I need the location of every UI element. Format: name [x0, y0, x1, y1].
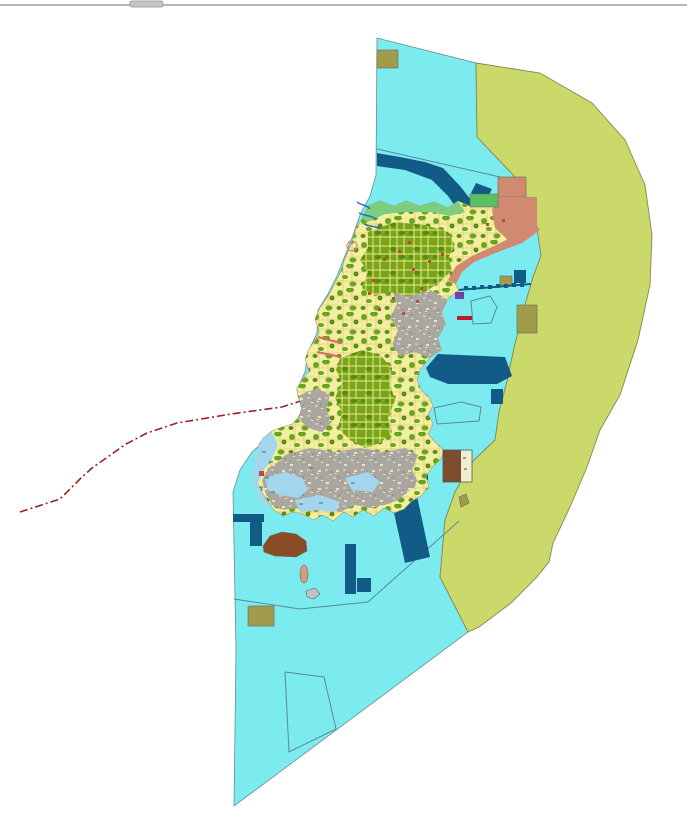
- village-dot: [441, 253, 444, 256]
- village-dot: [378, 308, 381, 311]
- map-canvas[interactable]: [0, 0, 687, 821]
- harbor-basin: [426, 354, 512, 384]
- village-dot: [416, 300, 419, 303]
- blue-square-south: [357, 578, 371, 592]
- blue-square-east-upper: [514, 270, 526, 283]
- islet-pink: [300, 565, 308, 583]
- forest-cluster-central: [335, 350, 395, 448]
- jetty-tick: [520, 283, 524, 287]
- red-coast-dot: [259, 471, 264, 476]
- village-dot: [412, 268, 415, 271]
- village-dot: [383, 258, 386, 261]
- south-pier-strip: [345, 544, 356, 594]
- southwest-pier-bar: [233, 514, 264, 522]
- map-svg: [0, 0, 687, 821]
- village-dot: [398, 250, 401, 253]
- jetty-tick: [496, 284, 500, 288]
- window-edge-knob: [130, 1, 163, 7]
- urban-area-east-central: [390, 285, 448, 358]
- jetty-tick: [464, 286, 468, 290]
- jetty-tick: [488, 285, 492, 289]
- khaki-zone-east-large: [517, 305, 537, 333]
- split-square-brown-half: [443, 450, 461, 482]
- jetty-tick: [472, 286, 476, 290]
- split-parcel-square: [443, 450, 472, 482]
- village-dot: [420, 287, 423, 290]
- village-dot: [392, 297, 395, 300]
- green-parcel-rect: [470, 194, 498, 207]
- khaki-zone-southwest: [248, 606, 274, 626]
- village-dot: [408, 241, 411, 244]
- jetty-tick: [504, 284, 508, 288]
- split-square-mark: [464, 468, 467, 470]
- village-dot: [502, 219, 505, 222]
- village-dot: [372, 279, 375, 282]
- village-dot: [368, 292, 371, 295]
- khaki-zone-north: [377, 50, 398, 68]
- split-square-mark: [463, 457, 466, 459]
- jetty-tick: [480, 285, 484, 289]
- purple-harbor-structure: [455, 292, 464, 299]
- split-square-cream-half: [461, 450, 472, 482]
- salmon-rect-northeast: [498, 177, 526, 197]
- red-ferry-pier: [457, 316, 472, 320]
- village-dot: [486, 223, 489, 226]
- blue-square-east-lower: [491, 389, 503, 404]
- village-dot: [402, 312, 405, 315]
- jetty-tick: [512, 283, 516, 287]
- village-dot: [428, 260, 431, 263]
- southwest-pier-stem: [250, 522, 262, 546]
